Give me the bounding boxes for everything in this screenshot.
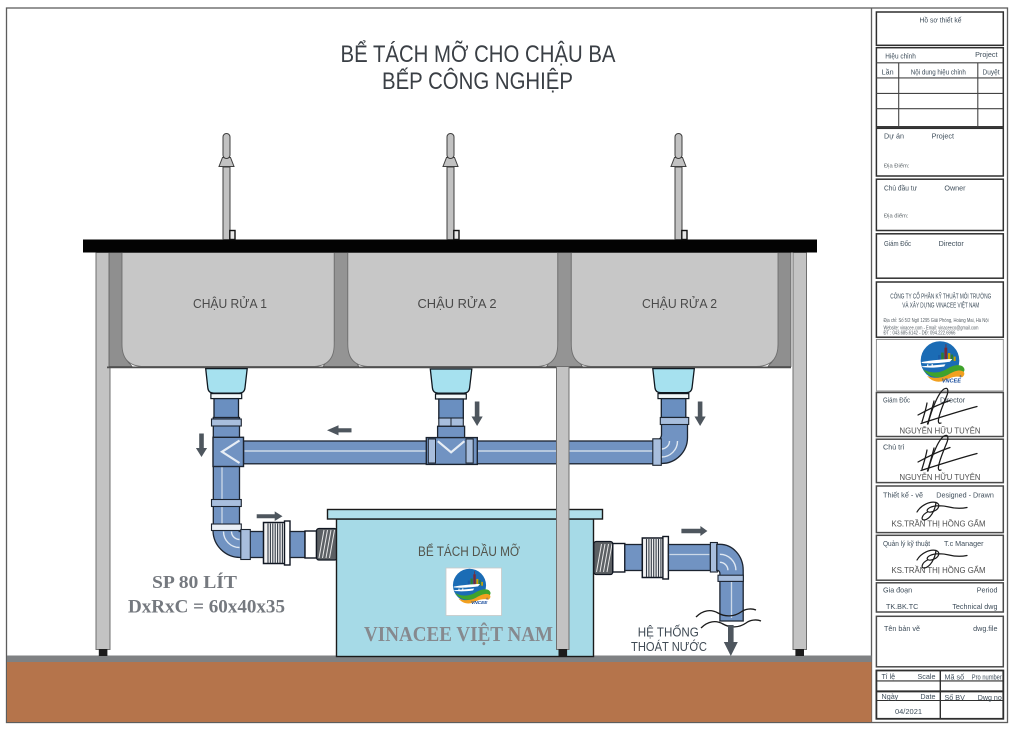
svg-text:Giám Đốc: Giám Đốc [884,239,911,248]
svg-text:TK.BK.TC: TK.BK.TC [886,602,918,611]
svg-text:Designed - Drawn: Designed - Drawn [936,491,994,500]
svg-text:NGUYỄN HỮU TUYÊN: NGUYỄN HỮU TUYÊN [900,471,981,482]
svg-text:KS.TRẦN THỊ HỒNG GẤM: KS.TRẦN THỊ HỒNG GẤM [892,518,986,529]
svg-text:T.c Manager: T.c Manager [944,539,984,548]
svg-text:SP 80 LÍT: SP 80 LÍT [152,571,237,592]
svg-text:HỆ THỐNG: HỆ THỐNG [638,625,699,640]
svg-text:VÀ XÂY DỰNG VINACEE VIỆT NAM: VÀ XÂY DỰNG VINACEE VIỆT NAM [902,300,979,309]
svg-text:BỂ TÁCH DẦU MỠ: BỂ TÁCH DẦU MỠ [418,544,520,559]
svg-text:Địa điểm:: Địa điểm: [884,212,909,219]
svg-text:Thiết kế - vẽ: Thiết kế - vẽ [883,491,923,500]
svg-text:CHẬU RỬA 2: CHẬU RỬA 2 [642,296,717,311]
svg-text:DxRxC = 60x40x35: DxRxC = 60x40x35 [128,597,285,618]
svg-text:Dwg no: Dwg no [978,693,1002,702]
svg-text:Project: Project [975,50,997,59]
svg-text:Hồ sơ thiết kế: Hồ sơ thiết kế [920,16,963,25]
svg-text:BẾP CÔNG NGHIỆP: BẾP CÔNG NGHIỆP [382,67,573,95]
svg-text:Tỉ lệ: Tỉ lệ [882,672,896,681]
svg-text:Period: Period [977,585,998,594]
svg-text:Lần: Lần [882,67,894,76]
svg-text:Pro number: Pro number [972,673,1002,682]
svg-text:Dự án: Dự án [884,132,904,141]
svg-text:Giám Đốc: Giám Đốc [883,395,910,404]
svg-text:ĐT : 043.685.6142 - DĐ: 094.22: ĐT : 043.685.6142 - DĐ: 094.222.6966 [884,330,956,336]
svg-text:Hiệu chỉnh: Hiệu chỉnh [885,52,916,61]
svg-text:VINACEE VIỆT NAM: VINACEE VIỆT NAM [364,622,553,646]
svg-text:Chủ đầu tư: Chủ đầu tư [884,184,917,193]
svg-text:Số BV: Số BV [945,693,966,702]
svg-text:Director: Director [939,239,965,248]
svg-text:CHẬU RỬA 1: CHẬU RỬA 1 [193,296,267,311]
svg-text:Scale: Scale [918,672,936,681]
svg-text:Technical dwg: Technical dwg [952,602,997,611]
svg-text:Owner: Owner [944,184,966,193]
svg-text:CHẬU RỬA 2: CHẬU RỬA 2 [418,296,497,311]
svg-text:KS.TRẦN THỊ HỒNG GẤM: KS.TRẦN THỊ HỒNG GẤM [892,564,986,575]
svg-text:Date: Date [920,692,935,701]
svg-text:Nội dung hiệu chỉnh: Nội dung hiệu chỉnh [911,67,966,76]
svg-text:dwg.file: dwg.file [973,624,997,633]
svg-text:NGUYỄN HỮU TUYÊN: NGUYỄN HỮU TUYÊN [900,425,981,436]
svg-text:Project: Project [932,132,954,141]
svg-text:BỂ TÁCH MỠ CHO CHẬU BA: BỂ TÁCH MỠ CHO CHẬU BA [341,40,617,68]
svg-text:Gia đoạn: Gia đoạn [883,585,912,594]
svg-text:Chủ trì: Chủ trì [883,443,905,452]
svg-text:Mã số: Mã số [945,673,965,682]
svg-text:Địa Điểm:: Địa Điểm: [884,162,910,169]
svg-text:Duyệt: Duyệt [983,67,1000,76]
svg-text:Tên bản vẽ: Tên bản vẽ [884,624,920,633]
svg-text:Quản lý kỹ thuật: Quản lý kỹ thuật [883,539,930,548]
svg-text:Địa chỉ: Số 5/2 Ngõ 1295 Giải: Địa chỉ: Số 5/2 Ngõ 1295 Giải Phóng, Hoà… [884,317,989,324]
svg-text:THOÁT NƯỚC: THOÁT NƯỚC [631,639,707,654]
svg-text:Ngày: Ngày [882,692,899,701]
svg-text:04/2021: 04/2021 [895,707,922,716]
